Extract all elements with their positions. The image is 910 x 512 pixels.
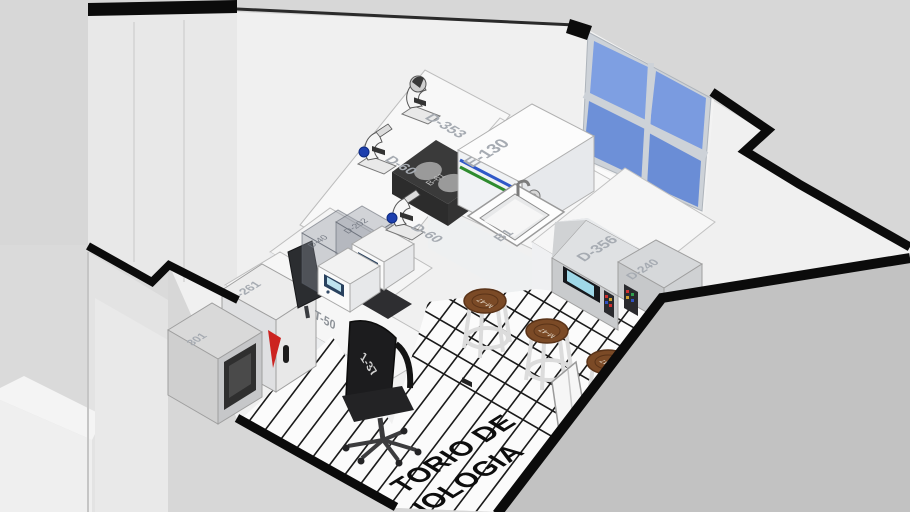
handle (283, 345, 289, 363)
outer-wall-left (0, 245, 168, 512)
isometric-scene: TORIO DE IOLOGIA D-261 301 D-40 (0, 0, 910, 512)
lab-floorplan-render: TORIO DE IOLOGIA D-261 301 D-40 (0, 0, 910, 512)
focus-knob (387, 213, 397, 223)
focus-knob (359, 147, 369, 157)
